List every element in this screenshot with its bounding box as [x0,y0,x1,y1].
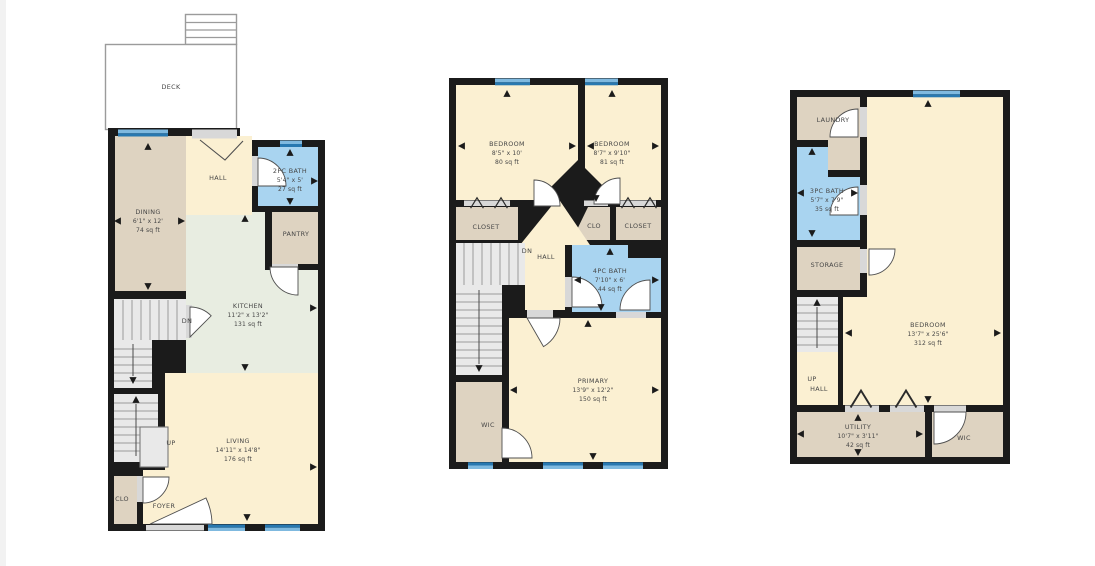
room-dims: 8'7" x 9'10" [593,150,630,157]
room-dims: 11'2" x 13'2" [227,312,268,319]
window [280,144,302,147]
window [468,466,493,470]
window [543,466,583,470]
room-label: CLOSET [625,222,652,230]
window [603,462,643,465]
room-dims: 5'7" x 7'9" [810,197,843,204]
room-area: 74 sq ft [136,227,160,234]
primary-door-opening [527,310,553,318]
window [208,525,245,528]
room-area: 81 sq ft [600,159,624,166]
room-label: FOYER [153,502,176,510]
window [495,82,530,85]
bath-door-opening [252,156,258,186]
room-label: DINING [135,208,160,216]
bath-wall-notch [628,245,661,258]
floor-plans-canvas: DECK [0,0,1095,566]
closet-door-opening [137,476,143,502]
window [468,462,493,465]
wic-door-opening [934,406,966,413]
room-area: 176 sq ft [224,456,252,463]
room-area: 44 sq ft [598,286,622,293]
room-area: 35 sq ft [815,206,839,213]
room-label: CLO [587,222,601,230]
room-label: HALL [810,385,828,393]
room-label: 3PC BATH [810,187,844,195]
basement-floor-plan: LAUNDRY 3PC BATH 5'7" x 7'9" 35 sq ft ST… [790,90,1010,464]
stair-label: UP [166,439,175,447]
room-label: LAUNDRY [817,116,850,124]
room-area: 80 sq ft [495,159,519,166]
window [280,141,302,145]
bath-door-opening [565,277,572,307]
room-label: LIVING [226,437,250,445]
room-label: WIC [957,434,971,442]
room-area: 42 sq ft [846,442,870,449]
room-label: UTILITY [845,423,871,431]
room-area: 27 sq ft [278,186,302,193]
room-pantry [272,212,318,264]
room-label: BEDROOM [594,140,630,148]
window [913,91,960,95]
stair-label: UP [807,375,816,383]
room-dims: 13'7" x 25'6" [907,331,948,338]
room-label: HALL [209,174,227,182]
room-hall [797,352,838,405]
window [495,79,530,83]
room-label: HALL [537,253,555,261]
laundry-door-opening [860,107,867,137]
room-area: 150 sq ft [579,396,607,403]
room-label: CLO [115,495,129,503]
main-floor-plan: DECK [106,15,326,532]
room-dims: 6'1" x 12' [133,218,163,225]
window [585,82,618,85]
room-label: CLOSET [473,223,500,231]
room-dims: 7'10" x 6' [595,277,625,284]
room-label: 2PC BATH [273,167,307,175]
room-label: WIC [481,421,495,429]
room-label: KITCHEN [233,302,263,310]
room-dims: 5'4" x 5' [277,177,303,184]
window [543,462,583,465]
stair-label: DN [182,317,192,325]
window [585,79,618,83]
room-wic [456,382,502,462]
floor-plans-page: DECK [0,0,1095,566]
deck-label: DECK [161,83,180,91]
room-label: BEDROOM [489,140,525,148]
second-floor-plan: BEDROOM 8'5" x 10' 80 sq ft BEDROOM 8'7"… [449,78,668,469]
bath-door-opening [860,185,867,215]
room-area: 312 sq ft [914,340,942,347]
window [603,466,643,470]
window [118,130,168,134]
window [265,525,300,528]
room-dims: 13'9" x 12'2" [572,387,613,394]
window [265,528,300,531]
window [208,528,245,531]
front-door-opening [146,525,204,531]
room-label: BEDROOM [910,321,946,329]
room-area: 131 sq ft [234,321,262,328]
stair-label: DN [522,247,532,255]
room-label: STORAGE [811,261,844,269]
room-dims: 10'7" x 3'11" [837,433,878,440]
window [913,94,960,97]
bath-door-opening [616,312,646,318]
room-dims: 14'11" x 14'8" [215,447,260,454]
room-label: 4PC BATH [593,267,627,275]
storage-door-opening [860,249,867,273]
room-dims: 8'5" x 10' [492,150,522,157]
stair-landing [140,427,168,467]
room-label: PRIMARY [578,377,608,385]
window [118,133,168,136]
patio-door-opening [192,130,237,139]
room-label: PANTRY [283,230,310,238]
